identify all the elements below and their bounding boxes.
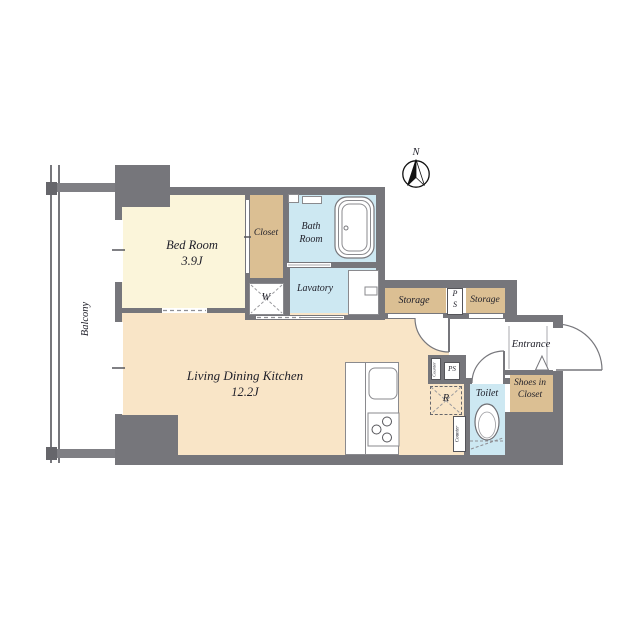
bathroom-label-line2: Room <box>286 235 336 246</box>
storage-right-door <box>469 314 503 318</box>
ldk-name-label: Living Dining Kitchen <box>145 369 345 383</box>
refrigerator-label: R <box>436 393 456 404</box>
compass-circle-icon <box>403 161 429 187</box>
floor-plan: N Balcony Bed Room 3.9J Closet Bath Room… <box>0 0 640 640</box>
lavatory-label: Lavatory <box>284 284 346 295</box>
shoes-closet-label-line1: Shoes in <box>504 379 556 389</box>
pipe-shaft-label-p: P <box>447 290 463 298</box>
wall-bottom-right-block <box>505 412 563 460</box>
ldk-size-label: 12.2J <box>145 386 345 399</box>
entrance-label: Entrance <box>500 339 562 350</box>
toilet-label: Toilet <box>462 389 512 400</box>
compass-needle-white-icon <box>416 160 425 186</box>
compass-north-label: N <box>406 147 426 158</box>
bath-shelf-wide <box>302 196 322 204</box>
toilet-door-opening <box>472 378 503 384</box>
bedroom-sliding-door <box>162 308 207 313</box>
balcony-rail-outer <box>50 165 52 463</box>
compass-needle-black-icon <box>408 160 417 186</box>
balcony-label: Balcony <box>80 291 94 347</box>
window-ldk <box>114 322 123 414</box>
washing-machine-label: W <box>256 292 276 303</box>
closet-label: Closet <box>244 229 288 239</box>
pipe-shaft-label-s: S <box>447 301 463 309</box>
entrance-door-arc <box>556 324 602 370</box>
storage-left-door <box>388 314 443 318</box>
pillar-top-left <box>115 165 170 207</box>
bath-door <box>287 263 331 267</box>
wall-right-stub <box>553 322 563 328</box>
storage-right-label: Storage <box>463 296 507 306</box>
lavatory-vanity <box>348 270 379 315</box>
entrance-step-triangle-icon <box>536 356 549 370</box>
bath-shelf-small <box>288 194 299 203</box>
bedroom-size-label: 3.9J <box>122 255 262 268</box>
wall-bottom <box>115 455 563 465</box>
kitchen-counter-unit <box>345 362 399 455</box>
kitchen-counter-label: Counter <box>433 360 440 380</box>
bathroom-label-line1: Bath <box>286 222 336 233</box>
toilet-counter-label: Counter <box>456 420 464 449</box>
wall-shoes-top <box>505 370 553 375</box>
balcony-slab-cap-bottom <box>46 447 57 460</box>
lavatory-sliding-door <box>256 316 344 319</box>
storage-left-label: Storage <box>383 296 445 307</box>
balcony-rail-inner <box>58 165 60 463</box>
bedroom-name-label: Bed Room <box>122 239 262 252</box>
wall-top <box>170 187 385 195</box>
balcony-slab-cap-top <box>46 182 57 195</box>
kitchen-pipe-shaft-label: PS <box>444 366 460 373</box>
wall-storage-top <box>376 280 517 288</box>
